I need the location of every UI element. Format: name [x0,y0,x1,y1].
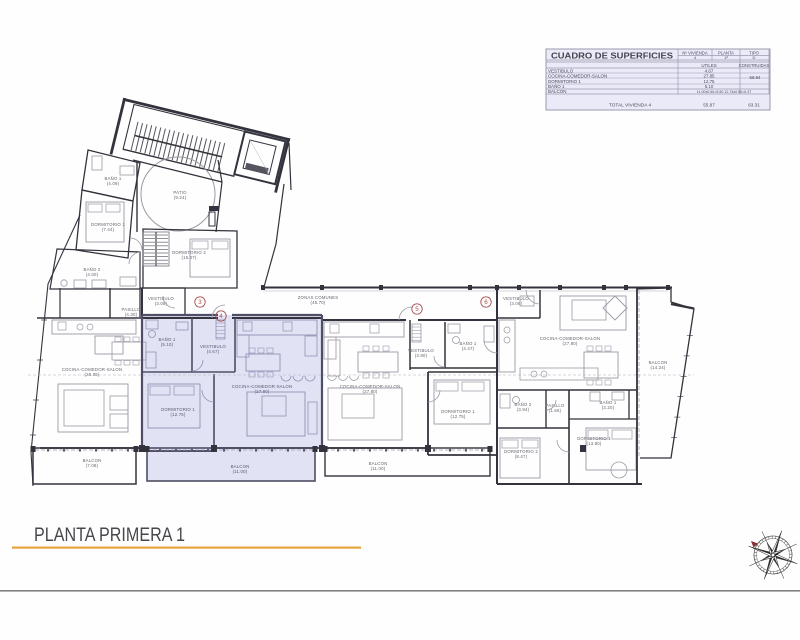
svg-text:CONSTRUIDAS: CONSTRUIDAS [739,63,770,68]
svg-text:BALCON(14.24): BALCON(14.24) [649,360,668,370]
svg-text:27.85: 27.85 [704,74,716,79]
svg-text:63.31: 63.31 [748,103,760,108]
svg-text:PLANTA PRIMERA 1: PLANTA PRIMERA 1 [34,525,185,546]
svg-text:UTILES: UTILES [701,63,716,68]
svg-text:D: D [753,55,756,60]
svg-text:COCINA-COMEDOR-SALON: COCINA-COMEDOR-SALON [548,74,607,79]
svg-text:5: 5 [415,306,419,313]
svg-text:BALCON(11.00): BALCON(11.00) [231,464,250,474]
svg-text:6: 6 [484,299,488,306]
svg-text:CUADRO DE SUPERFICIES: CUADRO DE SUPERFICIES [551,51,673,61]
svg-text:58.94: 58.94 [750,75,762,80]
svg-text:5.10: 5.10 [705,84,714,89]
svg-text:PATIO(9.24): PATIO(9.24) [173,190,187,200]
svg-text:BALCON(11.00): BALCON(11.00) [369,461,388,471]
svg-text:4: 4 [219,313,223,320]
svg-text:BAÑO 1: BAÑO 1 [548,83,565,89]
svg-text:11.00x0.50=5.50 12.74x0.50=6.3: 11.00x0.50=5.50 12.74x0.50=6.37 [697,90,752,94]
svg-text:TOTAL VIVIENDA 4: TOTAL VIVIENDA 4 [609,103,652,109]
svg-text:55.87: 55.87 [703,103,715,108]
svg-text:BALCON: BALCON [548,89,567,94]
svg-text:3: 3 [198,299,202,306]
svg-text:1ª: 1ª [724,55,728,60]
